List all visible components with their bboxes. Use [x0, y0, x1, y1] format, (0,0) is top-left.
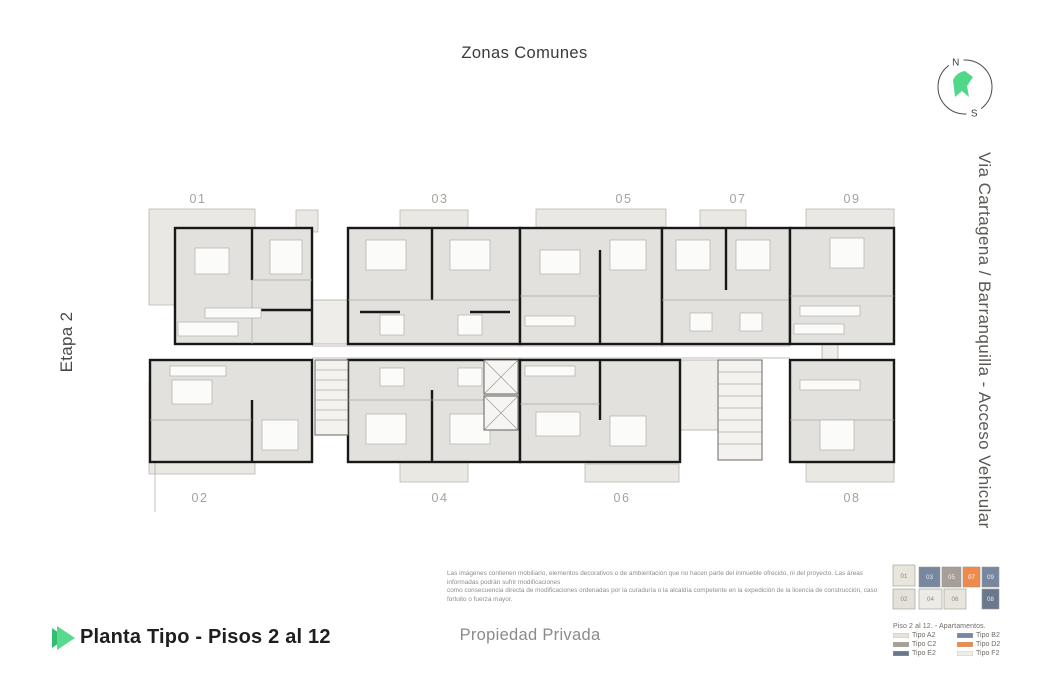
legend-mini-plan: 01 03 05 07 09 02 04 06 08 [890, 560, 1002, 614]
mini-label-05: 05 [948, 574, 955, 581]
mini-label-07: 07 [968, 574, 975, 581]
floor-plan: 01 03 05 07 09 02 04 06 08 [143, 192, 903, 512]
unit-05 [520, 228, 662, 344]
legend-title: Piso 2 al 12. - Apartamentos. [893, 623, 1030, 630]
unit-label-02: 02 [192, 491, 209, 505]
unit-label-06: 06 [614, 491, 631, 505]
legend-swatch-e2 [893, 651, 909, 656]
stair-core-right [718, 360, 762, 460]
mini-label-09: 09 [987, 574, 994, 581]
legend-item-d2: Tipo D2 [957, 641, 1021, 648]
legend-label-f2: Tipo F2 [976, 650, 999, 657]
legend-item-e2: Tipo E2 [893, 650, 957, 657]
unit-label-05: 05 [616, 192, 633, 206]
propiedad-privada-label: Propiedad Privada [380, 626, 680, 645]
page-title: Zonas Comunes [0, 44, 1049, 63]
mini-label-01: 01 [901, 573, 908, 580]
stair-core-left [315, 360, 348, 435]
legend-swatch-c2 [893, 642, 909, 647]
disclaimer-line-2: como consecuencia directa de modificacio… [447, 587, 883, 604]
disclaimer: Las imágenes contienen mobiliario, eleme… [447, 570, 883, 604]
unit-label-08: 08 [844, 491, 861, 505]
footer-title: Planta Tipo - Pisos 2 al 12 [80, 626, 331, 649]
legend-label-a2: Tipo A2 [912, 632, 935, 639]
left-side-label: Etapa 2 [57, 292, 77, 392]
unit-label-01: 01 [190, 192, 207, 206]
legend-swatch-d2 [957, 642, 973, 647]
legend-item-b2: Tipo B2 [957, 632, 1021, 639]
disclaimer-line-1: Las imágenes contienen mobiliario, eleme… [447, 570, 883, 587]
compass-south-label: S [971, 108, 978, 119]
unit-label-04: 04 [432, 491, 449, 505]
unit-09 [790, 228, 894, 344]
unit-02 [150, 360, 312, 462]
footer-arrow-icon [50, 624, 78, 652]
unit-07 [662, 228, 790, 344]
unit-label-07: 07 [730, 192, 747, 206]
mini-label-06: 06 [952, 596, 959, 603]
legend-item-f2: Tipo F2 [957, 650, 1021, 657]
right-side-label: Via Cartagena / Barranquilla - Acceso Ve… [974, 152, 994, 552]
compass-icon: N S [930, 50, 1000, 125]
legend-label-c2: Tipo C2 [912, 641, 936, 648]
unit-label-09: 09 [844, 192, 861, 206]
mini-label-02: 02 [901, 596, 908, 603]
mini-label-03: 03 [926, 574, 933, 581]
legend: 01 03 05 07 09 02 04 06 08 Piso 2 al 12.… [890, 560, 1030, 657]
mini-label-08: 08 [987, 596, 994, 603]
legend-label-e2: Tipo E2 [912, 650, 936, 657]
unit-06 [520, 360, 680, 462]
unit-08 [790, 360, 894, 462]
legend-item-c2: Tipo C2 [893, 641, 957, 648]
page: Zonas Comunes N S Etapa 2 Via Cartagena … [0, 0, 1049, 700]
unit-01 [175, 228, 312, 344]
compass-north-label: N [952, 58, 959, 69]
legend-label-b2: Tipo B2 [976, 632, 1000, 639]
compass-needle [953, 71, 973, 97]
unit-label-03: 03 [432, 192, 449, 206]
legend-swatch-b2 [957, 633, 973, 638]
legend-swatch-f2 [957, 651, 973, 656]
legend-label-d2: Tipo D2 [976, 641, 1000, 648]
legend-swatch-a2 [893, 633, 909, 638]
legend-item-a2: Tipo A2 [893, 632, 957, 639]
mini-label-04: 04 [927, 596, 934, 603]
legend-grid: Tipo A2 Tipo B2 Tipo C2 Tipo D2 Tipo E2 … [893, 632, 1030, 657]
unit-03 [348, 228, 520, 344]
